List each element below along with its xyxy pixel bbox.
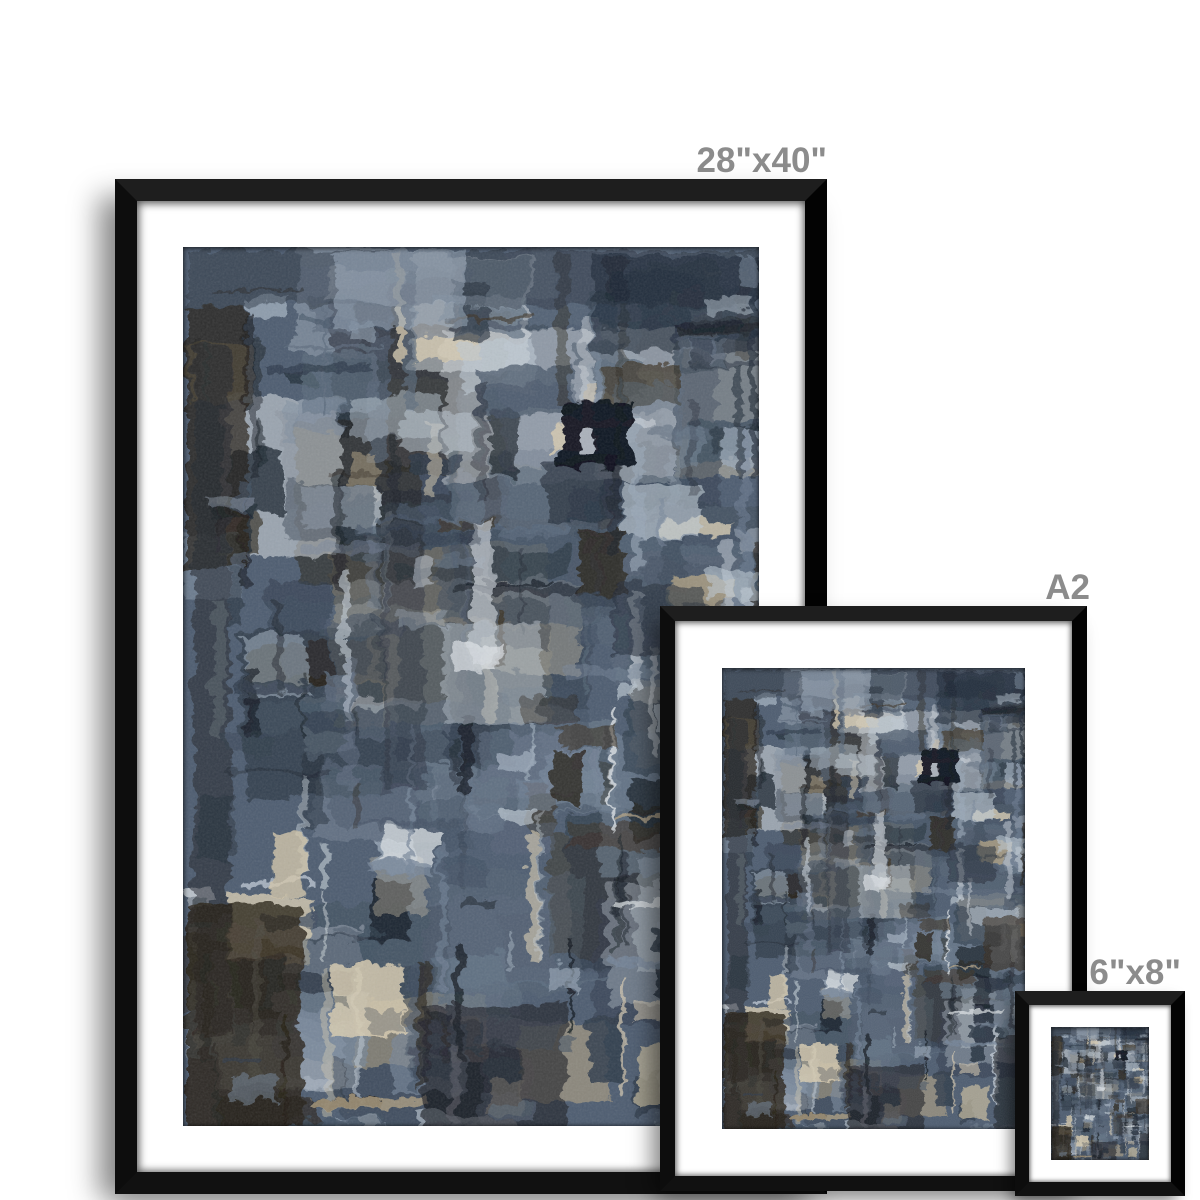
size-label-6x8: 6"x8" <box>1089 960 1181 986</box>
size-label-28x40: 28"x40" <box>696 148 827 174</box>
artwork-6x8 <box>1051 1027 1149 1160</box>
frame-6x8 <box>1015 991 1185 1196</box>
size-label-a2: A2 <box>1045 575 1090 601</box>
abstract-painting <box>722 668 1025 1129</box>
artwork-a2 <box>722 668 1025 1129</box>
framed-print-6x8: 6"x8" <box>1015 991 1185 1196</box>
product-size-mockup: 28"x40" A2 6"x8" <box>0 0 1200 1200</box>
abstract-painting <box>1051 1027 1149 1160</box>
